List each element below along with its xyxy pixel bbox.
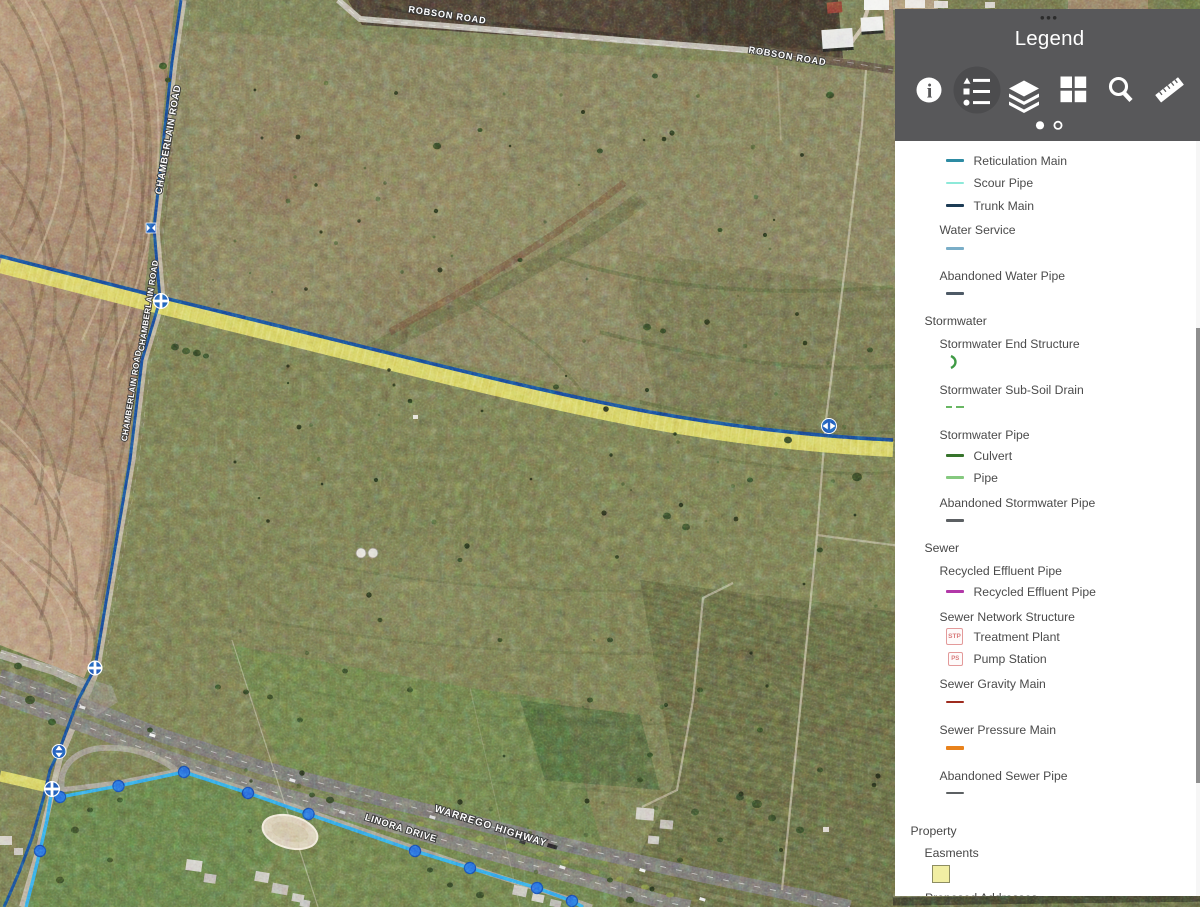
- svg-text:i: i: [927, 81, 933, 103]
